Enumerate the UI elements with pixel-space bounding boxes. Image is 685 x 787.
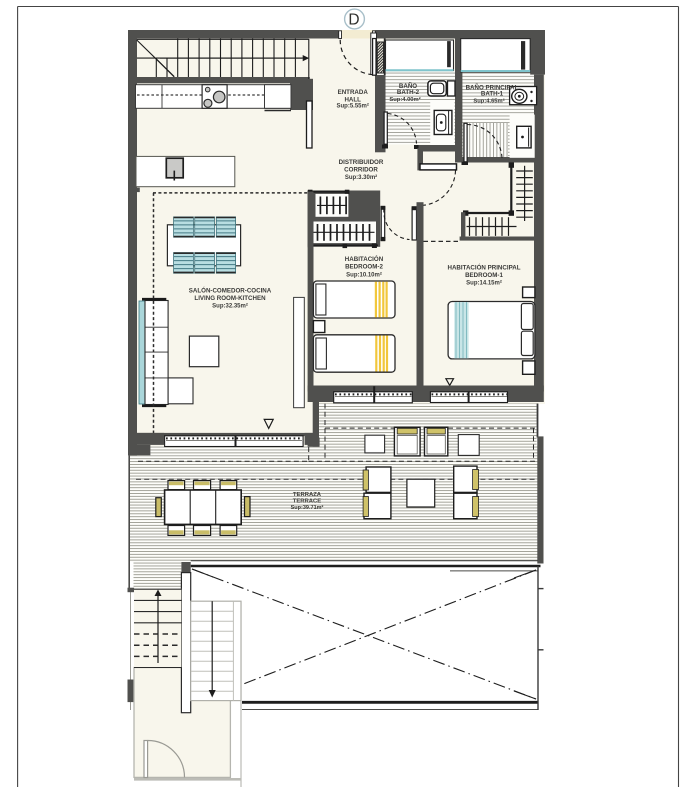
svg-text:TERRACE: TERRACE: [293, 499, 322, 505]
svg-text:HABITACIÓN PRINCIPAL: HABITACIÓN PRINCIPAL: [448, 264, 521, 272]
svg-text:D: D: [348, 12, 359, 29]
svg-text:ENTRADA: ENTRADA: [338, 89, 369, 96]
svg-text:Sup:5.55m²: Sup:5.55m²: [337, 103, 369, 110]
svg-text:HALL: HALL: [344, 97, 361, 104]
svg-text:Sup:14.15m²: Sup:14.15m²: [466, 280, 502, 287]
svg-text:Sup:39.71m²: Sup:39.71m²: [291, 504, 324, 511]
svg-text:LIVING ROOM-KITCHEN: LIVING ROOM-KITCHEN: [194, 295, 266, 302]
svg-text:Sup:4.00m²: Sup:4.00m²: [389, 96, 420, 103]
svg-text:BEDROOM-1: BEDROOM-1: [465, 272, 503, 279]
svg-text:BEDROOM-2: BEDROOM-2: [345, 264, 383, 271]
svg-text:DISTRIBUIDOR: DISTRIBUIDOR: [339, 159, 384, 166]
svg-text:Sup:10.10m²: Sup:10.10m²: [346, 272, 382, 279]
svg-text:TERRAZA: TERRAZA: [293, 492, 322, 498]
svg-text:Sup:4.65m²: Sup:4.65m²: [473, 97, 504, 104]
svg-text:BATH-1: BATH-1: [481, 91, 504, 98]
svg-text:Sup:32.35m²: Sup:32.35m²: [212, 303, 248, 310]
svg-text:CORRIDOR: CORRIDOR: [344, 167, 378, 174]
svg-text:Sup:3.30m²: Sup:3.30m²: [345, 174, 377, 181]
svg-text:HABITACIÓN: HABITACIÓN: [345, 255, 384, 263]
svg-text:BATH-2: BATH-2: [397, 89, 420, 96]
svg-text:SALÓN-COMEDOR-COCINA: SALÓN-COMEDOR-COCINA: [189, 287, 272, 295]
